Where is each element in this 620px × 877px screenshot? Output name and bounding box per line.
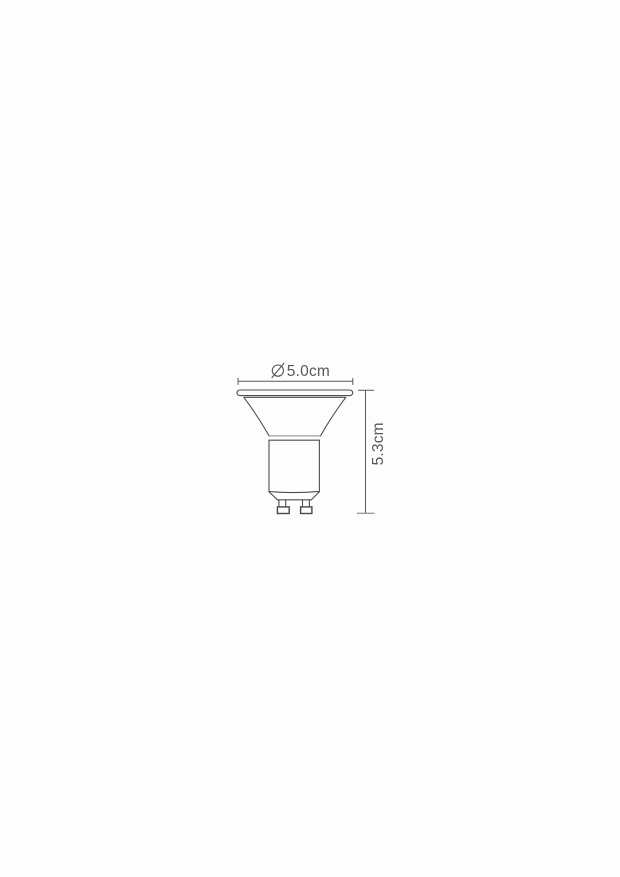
svg-text:5.0cm: 5.0cm [287, 363, 330, 380]
svg-text:5.3cm: 5.3cm [370, 422, 387, 465]
